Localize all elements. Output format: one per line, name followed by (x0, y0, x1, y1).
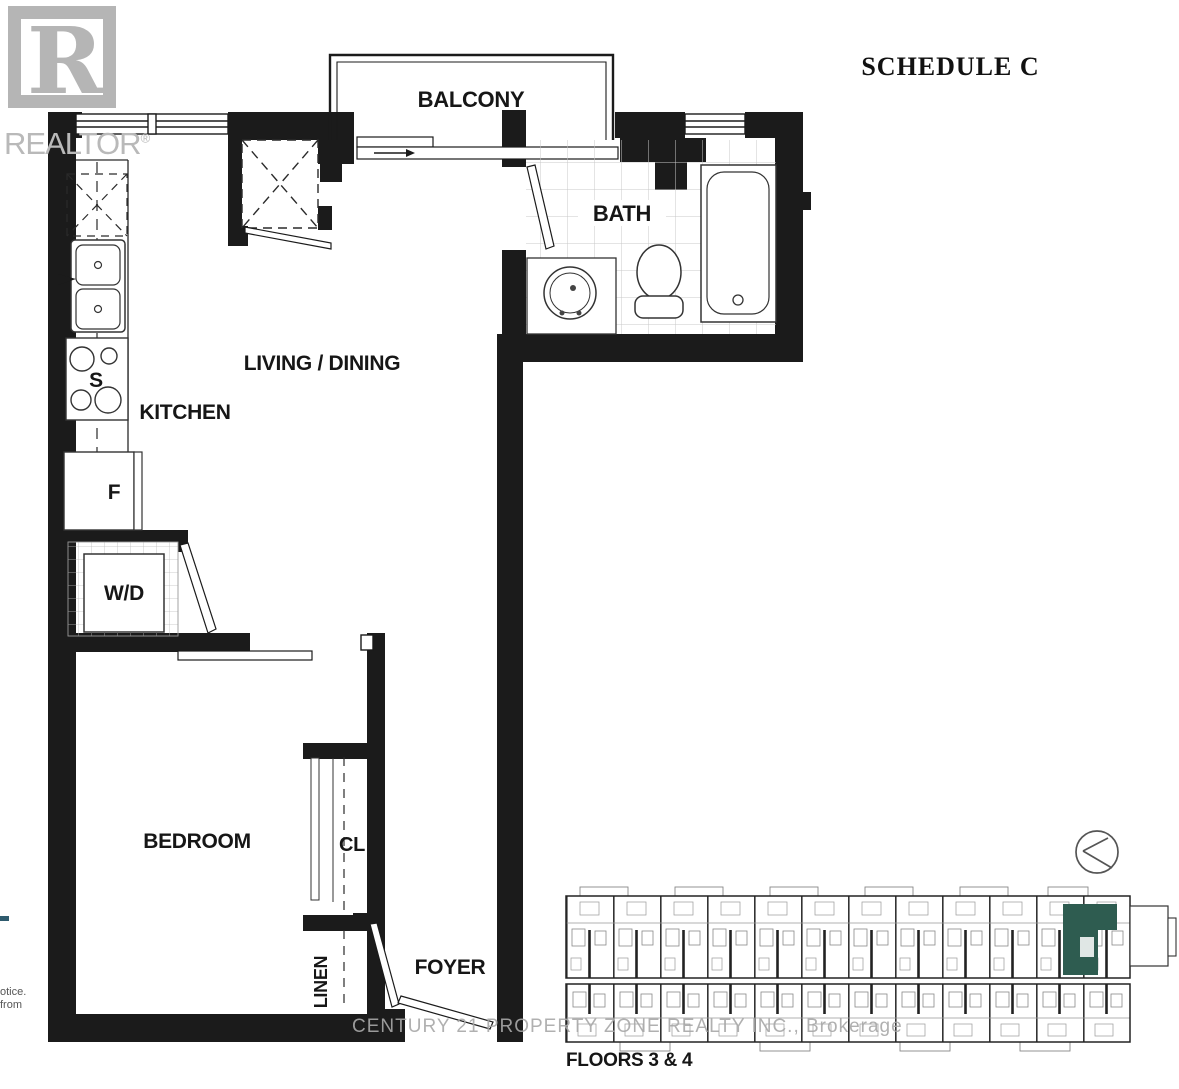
bath-vanity-sink (527, 258, 616, 334)
kitchen-area: S F KITCHEN (58, 160, 231, 530)
linen-closet: LINEN (311, 923, 399, 1010)
pocket-door-cap (361, 635, 373, 650)
living-dining-label: LIVING / DINING (244, 352, 401, 375)
keyplan-unit-detail (1080, 937, 1094, 957)
closet-door-leaf (245, 227, 331, 249)
schedule-title: SCHEDULE C (858, 52, 1043, 82)
registered-trademark-icon: ® (141, 131, 150, 146)
brokerage-watermark: CENTURY 21 PROPERTY ZONE REALTY INC., Br… (352, 1016, 903, 1038)
bedroom-closet: CL (311, 757, 365, 913)
disclaimer-fragment-2: from (0, 999, 26, 1012)
clipped-logo-mark (0, 916, 9, 921)
realtor-wordmark-text: REALTOR (4, 126, 141, 161)
kitchen-label: KITCHEN (139, 401, 230, 424)
linen-label: LINEN (311, 956, 331, 1009)
keyplan-end-appendage (1168, 918, 1176, 956)
floorplan-drawing: BALCONY (0, 0, 1179, 1089)
balcony-slider-panel (357, 137, 433, 147)
bedroom-sliding-door (178, 651, 312, 660)
closet-label: CL (339, 834, 365, 856)
bathtub (701, 165, 776, 322)
keyplan-end-rooms (1130, 906, 1168, 966)
stove-label: S (89, 369, 103, 392)
washer-dryer-closet: W/D (68, 542, 216, 636)
north-arrow-icon (1076, 831, 1118, 873)
realtor-wordmark: REALTOR® (4, 126, 149, 162)
bathroom: BATH (526, 140, 776, 334)
toilet (635, 245, 683, 318)
foyer-label: FOYER (415, 956, 486, 979)
balcony-label: BALCONY (418, 87, 525, 112)
fridge (64, 452, 142, 530)
bath-window (685, 114, 745, 134)
bath-label: BATH (593, 201, 651, 226)
mechanical-closet (242, 140, 331, 249)
washer-dryer-label: W/D (104, 582, 144, 605)
bedroom-label: BEDROOM (143, 830, 251, 853)
clipped-disclaimer-text: otice. from (0, 986, 26, 1012)
disclaimer-fragment-1: otice. (0, 986, 26, 999)
keyplan-caption: FLOORS 3 & 4 (566, 1050, 693, 1071)
floorplan-page: R REALTOR® (0, 0, 1179, 1089)
wd-door-leaf (180, 543, 216, 633)
keyplan: FLOORS 3 & 4 (566, 887, 1176, 1071)
fridge-label: F (108, 481, 121, 504)
keyplan-top-band (566, 896, 1130, 978)
